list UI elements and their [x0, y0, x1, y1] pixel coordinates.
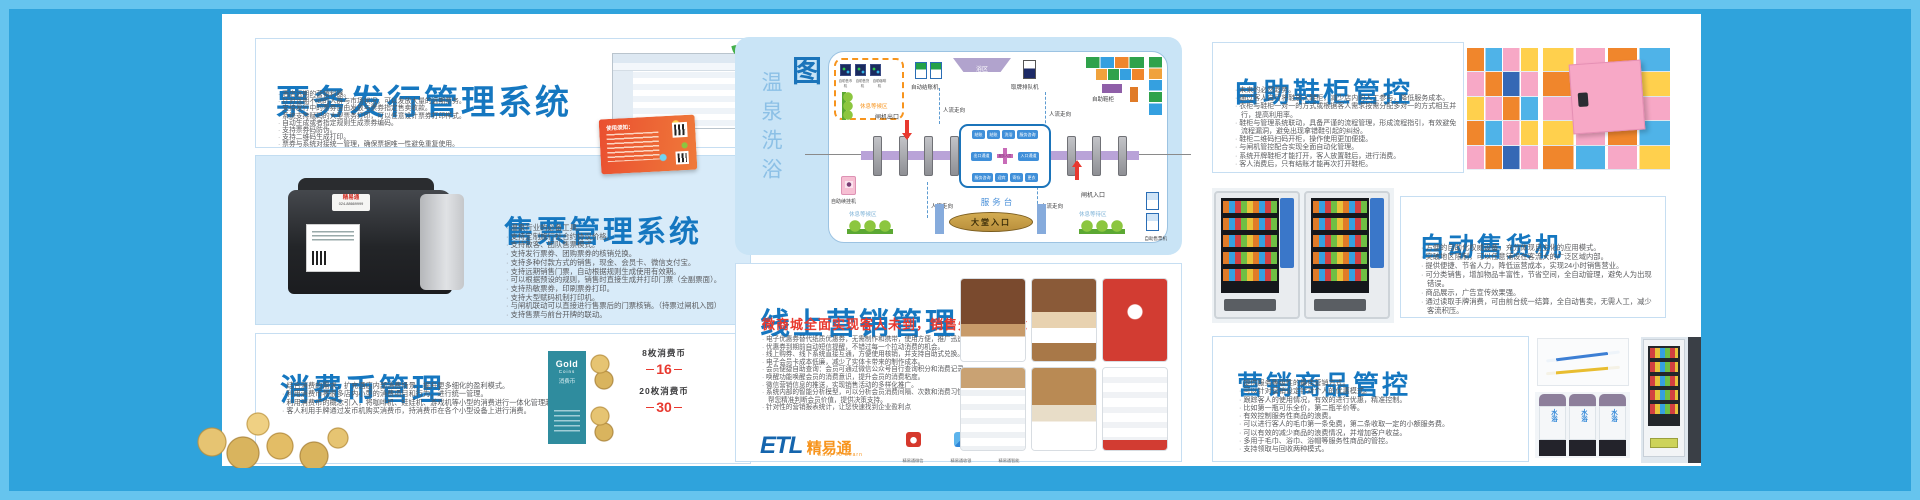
- swabs-photo: [1537, 338, 1629, 386]
- product-shelf: [1650, 390, 1678, 400]
- panel-ticket-sales: 精易通 024-88669999 售票管理系统 温泉行业的必备工具。支持定制旅行…: [255, 155, 751, 325]
- entry-gates: [1041, 136, 1127, 176]
- mini-machine-label: 自助售币机: [838, 78, 853, 88]
- bullet-item: 支持售票与前台开牌的联动。: [506, 311, 748, 320]
- bullet-item: 可以进行客人的毛巾第一条免费，第二条收取一定的小额服务费。: [1239, 420, 1519, 428]
- product-shelf: [1313, 218, 1367, 230]
- gate-pillar: [1092, 136, 1101, 176]
- bottle-label: 水浴: [1578, 409, 1588, 422]
- locker-closeup-photo: [1543, 48, 1670, 170]
- bullet-item: 提供便捷、节省人力，降低运营成本，实现24小时销售营业。: [1421, 261, 1657, 270]
- shoe-locker-graphic: 自助鞋柜: [1086, 57, 1162, 117]
- orange-block: [1130, 87, 1138, 102]
- bullet-item: 电子优惠券替代纸质优惠券，无需制作和携带，使用方便，推广迅速: [762, 336, 974, 344]
- bullet-item: 支持发行中的票券自由发放与票券指定售卖收款。: [278, 105, 613, 112]
- coin-qty-label: 8枚消费币: [620, 347, 708, 359]
- bottle-foot: [1569, 440, 1596, 456]
- vending-interior: [1648, 346, 1680, 426]
- bullet-item: 自动生成或者指定规则生成票券编码。: [278, 120, 613, 127]
- service-chip: 寄存: [1010, 173, 1023, 182]
- coins-photo: [188, 398, 368, 468]
- ticket-kiosk-icon: [1146, 213, 1159, 231]
- service-chip: 服务咨询: [1017, 130, 1038, 139]
- mini-machine-icons: [840, 64, 881, 76]
- bullet-item: 可分类销售，增加物品丰富性，节省空间，全自动管理，避免人为出现错误。: [1421, 270, 1657, 288]
- bullet-item: 可以针对营销设定针对个人的优惠模式。: [1239, 387, 1519, 395]
- bottle-label: 水浴: [1608, 409, 1618, 422]
- bullet-item: 可以有效的减少商品的浪费情况，并增加客户收益。: [1239, 429, 1519, 437]
- product-shelf: [1313, 201, 1367, 213]
- mini-machine-icon: [870, 64, 881, 76]
- coin-price: 8枚消费币 16: [620, 347, 708, 379]
- bottle: 水浴: [1569, 394, 1596, 456]
- app-screenshot: [960, 367, 1026, 451]
- service-desk-label: 服务台: [829, 196, 1167, 208]
- ticket-kiosk-icon: [1146, 192, 1159, 210]
- renew-machine-icon: [841, 176, 856, 195]
- bottle-cap: [1569, 394, 1596, 406]
- ticket-card: 使用须知：: [599, 115, 698, 175]
- panel-flow-diagram: 温泉洗浴 自助化流程图 自助售币机自助售货机自助咖啡机 休息等候区 自动结账机 …: [735, 37, 1182, 255]
- purple-block: [1102, 84, 1122, 93]
- vending-interior: [1311, 198, 1369, 293]
- app-screenshot: [1031, 278, 1097, 362]
- qr-code-icon: [675, 151, 689, 165]
- product-shelf: [1313, 269, 1367, 281]
- exit-gates: [873, 136, 959, 176]
- bullet-list: 温泉行业的必备工具。支持定制旅行社合约协议价格。支持散客、团队售票模式。支持发行…: [506, 224, 748, 320]
- bullet-item: 唤醒功能唤醒会员的消费意识，提升会员的消费粘度。: [762, 374, 974, 382]
- bullet-item: 票券与系统对接统一管理，确保票据唯一性避免重复使用。: [278, 141, 613, 148]
- product-shelf: [1223, 269, 1277, 281]
- screenshot-content: [961, 368, 1025, 450]
- locker-tiles-row: [1086, 57, 1144, 68]
- poster-canvas: 票务发行管理系统 酒店远期的营销利器。针对远期不同的人群与市场状况，可以发放大量…: [0, 0, 1920, 500]
- swab-blue: [1546, 351, 1620, 363]
- bench-icon: [1079, 220, 1125, 234]
- locker-tiles-row: [1096, 69, 1144, 80]
- screenshot-content: [1032, 279, 1096, 361]
- bullet-item: 客人消费后，只有结账才能再次打开鞋柜。: [1235, 161, 1457, 169]
- towel-vending-photo: [1641, 337, 1701, 463]
- qr-code-icon: [672, 122, 688, 138]
- printer-brand-plate: 精易通 024-88669999: [332, 194, 370, 211]
- product-shelf: [1650, 348, 1678, 358]
- app-label: 精易通微信: [903, 458, 924, 463]
- mini-machine-icon: [855, 64, 866, 76]
- panel-goods-control: 营销商品管控 提供服务等级性的最佳营销方式。可以针对营销设定针对个人的优惠模式。…: [1212, 336, 1529, 462]
- product-shelf: [1650, 362, 1678, 372]
- checkout-kiosks: [915, 62, 942, 79]
- app-label: 精易通收银: [951, 458, 972, 463]
- coin-price-value: 30: [646, 399, 682, 415]
- printed-label: [306, 224, 360, 272]
- dispense-slot: [1314, 299, 1366, 311]
- product-shelf: [1223, 235, 1277, 247]
- screenshot-content: [961, 279, 1025, 361]
- card-title: Gold: [548, 359, 586, 369]
- product-shelf: [1650, 376, 1678, 386]
- screenshot-content: [1103, 279, 1167, 361]
- app-screenshot: [1102, 367, 1168, 451]
- locker-photo: [1467, 48, 1538, 170]
- app-unit: 精易通微信: [896, 432, 930, 467]
- exit-arrow-icon: [905, 120, 909, 138]
- rest-area-label: 休息等候区: [860, 102, 888, 110]
- flow-path: [939, 88, 940, 124]
- service-chip: 更衣: [1025, 173, 1038, 182]
- product-shelf: [1223, 201, 1277, 213]
- adjacent-machine: [1688, 337, 1701, 463]
- panel-ticket-issuance: 票务发行管理系统 酒店远期的营销利器。针对远期不同的人群与市场状况，可以发放大量…: [255, 38, 751, 148]
- ticket-kiosks: [1146, 192, 1159, 231]
- product-shelf: [1223, 252, 1277, 264]
- vending-machine: [1304, 191, 1390, 319]
- bottles-photo: 水浴 水浴 水浴: [1535, 392, 1630, 458]
- compass-icon: 服务人员: [997, 148, 1013, 164]
- locker-row: [1467, 48, 1538, 71]
- keypad-panel: [1280, 198, 1294, 268]
- bullet-item: 系统支持赋码的大型票务打印，可以任意设计票券打印样式。: [278, 113, 613, 120]
- mini-machine-label: 自助咖啡机: [872, 78, 887, 88]
- mini-machine-labels: 自助售币机自助售货机自助咖啡机: [838, 78, 887, 88]
- people-flow-label: 人流走向: [1049, 110, 1071, 118]
- flow-path: [1045, 92, 1046, 128]
- service-chip: 入口通道: [1018, 152, 1039, 161]
- service-chip-row: 出口通道 服务人员 入口通道: [964, 148, 1046, 164]
- panel-online-marketing: 线上营销管理 微商城全面实现客人未到，销售先行的理念 电子优惠券替代纸质优惠券，…: [735, 263, 1182, 462]
- lock-icon: [1578, 92, 1589, 107]
- coin-price: 20枚消费币 30: [620, 385, 708, 417]
- locker-row: [1467, 72, 1538, 95]
- queue-machine-icon: [1023, 60, 1036, 79]
- app-screenshot-grid: [960, 278, 1172, 451]
- bullet-item: 针对性的营销报表统计，让您快速找到企业盈利点: [762, 404, 974, 412]
- locker-row: [1543, 146, 1670, 169]
- service-chip: 洗浴: [1002, 130, 1015, 139]
- logo-en: ETL: [760, 432, 802, 459]
- service-chip: 结账: [972, 130, 985, 139]
- printer-phone: 024-88669999: [332, 202, 370, 206]
- bullet-item: 鞋柜与管理系统联动，具备严谨的流程管理，形成流程指引，有效避免流程漏洞，避免出现…: [1235, 120, 1457, 136]
- wechat-app-icon: [906, 432, 921, 447]
- swab-yellow: [1546, 366, 1620, 375]
- service-chip-row: 服务咨询迎宾寄存更衣: [964, 173, 1046, 182]
- entry-arrow-icon: [1075, 162, 1079, 180]
- bottle-cap: [1599, 394, 1626, 406]
- vending-frame: [1643, 339, 1685, 457]
- printer-brand: 精易通: [332, 194, 370, 202]
- mini-machine-label: 自助售货机: [855, 78, 870, 88]
- dispense-slot: [1650, 438, 1678, 448]
- panel-shoe-locker: 自助鞋柜管控 未来的必然趋势。通过客人自行将鞋放入鞋柜，减少店内的人工参与，降低…: [1212, 42, 1464, 173]
- bullet-item: 跟踪客人的使用情况，有效的进行优惠，精准控制。: [1239, 396, 1519, 404]
- coin-qty-label: 20枚消费币: [620, 385, 708, 397]
- bench-icon: [842, 92, 855, 120]
- label-printer-photo: 精易通 024-88669999: [270, 162, 485, 314]
- printer-side: [420, 194, 464, 290]
- rest-area-dashed-box: 自助售币机自助售货机自助咖啡机 休息等候区: [834, 58, 904, 120]
- service-chip: 结账: [987, 130, 1000, 139]
- rest-area-label: 休息等候区: [849, 210, 877, 218]
- locker-row: [1467, 121, 1538, 144]
- bullet-item: 商品展示，广告宣传效果强。: [1421, 288, 1657, 297]
- locker-door: [1569, 60, 1646, 135]
- panel-vending-machine: 自动售货机 方便的自助化权威设备，充分体现自主化的应用模式。突破地区限制，可以任…: [1400, 196, 1666, 318]
- queue-machine-label: 取牌排队机: [1011, 83, 1039, 91]
- card-label: 消费币: [548, 377, 586, 385]
- coin-cluster-photo: [590, 354, 614, 390]
- bullet-list: 提供服务等级性的最佳营销方式。可以针对营销设定针对个人的优惠模式。跟踪客人的使用…: [1239, 379, 1519, 454]
- checkout-label: 自动结账机: [911, 83, 939, 91]
- bullet-list: 酒店远期的营销利器。针对远期不同的人群与市场状况，可以发放大量的远期票务。支持发…: [278, 91, 613, 149]
- coin-price-value: 16: [646, 361, 682, 377]
- bullet-item: 会员便捷自助查询：会员可通过微信公众号自行查询积分和消费记录。: [762, 366, 974, 374]
- locker-tiles-column: [1149, 57, 1162, 115]
- bullet-item: 系统开牌鞋柜才能打开，客人放置鞋后，进行消费。: [1235, 153, 1457, 161]
- hall-entrance: 大堂入口: [949, 212, 1033, 232]
- bullet-item: 衣柜与鞋柜一对一的方式或根据客人需求按需分配多对一的方式相互并行，提高利用率。: [1235, 103, 1457, 119]
- people-flow-label: 人流走向: [943, 106, 965, 114]
- coin-cluster-photo: [590, 406, 614, 442]
- bullet-item: 未来的必然趋势。: [1235, 87, 1457, 95]
- vending-machine: [1214, 191, 1300, 319]
- gate-exit-label: 闸机出口: [875, 112, 899, 121]
- bullet-list: 电子优惠券替代纸质优惠券，无需制作和携带，使用方便，推广迅速优惠券到期前自动短信…: [762, 336, 974, 412]
- locker-row: [1467, 97, 1538, 120]
- app-screenshot: [960, 278, 1026, 362]
- screenshot-content: [1103, 368, 1167, 450]
- app-screenshot: [1031, 367, 1097, 451]
- service-chip: 服务咨询: [972, 173, 993, 182]
- shoe-locker-label: 自助鞋柜: [1092, 95, 1114, 103]
- ticket-note-label: 使用须知：: [606, 123, 634, 132]
- bottle-label: 水浴: [1548, 409, 1558, 422]
- bullet-item: 线上购券、线下系统直接互通，方便使用核销，并支持自助式兑换。: [762, 351, 974, 359]
- checkout-kiosk-icon: [930, 62, 942, 79]
- service-chip: 出口通道: [971, 152, 992, 161]
- product-shelf: [1223, 218, 1277, 230]
- bullet-item: 比如第一瓶可乐全价，第二瓶半价等。: [1239, 404, 1519, 412]
- bullet-item: 系统内部的智能分析模型，可以分析会员消费间隔、次数和消费习惯，帮您精准判断会员价…: [762, 389, 974, 404]
- bottle-foot: [1599, 440, 1626, 456]
- gate-pillar: [1118, 136, 1127, 176]
- bench-icon: [847, 220, 893, 234]
- bottle: 水浴: [1599, 394, 1626, 456]
- qr-code-icon: [312, 251, 326, 265]
- bottle: 水浴: [1539, 394, 1566, 456]
- checkout-kiosk-icon: [915, 62, 927, 79]
- bottle-body: 水浴: [1599, 406, 1626, 440]
- gate-pillar: [873, 136, 882, 176]
- product-shelf: [1650, 404, 1678, 414]
- service-core-label: 服务人员: [995, 153, 1015, 158]
- bath-area-shape: 浴区: [953, 58, 1011, 72]
- bullet-item: 支持领取与回收两种模式。: [1239, 445, 1519, 453]
- product-shelf: [1313, 252, 1367, 264]
- renew-machine-label: 自助续挂机: [831, 198, 856, 205]
- logo-tagline: Easy To Learn: [818, 452, 863, 458]
- bullet-item: 通过读取手牌消费，可由前台统一结算，全自动售卖，无需人工，减少客流积压。: [1421, 297, 1657, 315]
- mini-machine-icon: [840, 64, 851, 76]
- vending-interior: [1221, 198, 1279, 293]
- service-chip-row: 结账结账洗浴服务咨询: [964, 130, 1046, 139]
- gold-coins-card: Gold Coins 消费币: [548, 351, 586, 444]
- bottle-body: 水浴: [1569, 406, 1596, 440]
- bath-area-label: 浴区: [976, 67, 988, 73]
- gate-pillar: [950, 136, 959, 176]
- floor-plan: 自助售币机自助售货机自助咖啡机 休息等候区 自动结账机 浴区 取牌排队机 自助鞋…: [828, 51, 1168, 243]
- dispense-slot: [1224, 299, 1276, 311]
- bullet-item: 突破地区限制，可以任意铺设在客流大的广泛区域内部。: [1421, 252, 1657, 261]
- gate-pillar: [924, 136, 933, 176]
- app-label: 精易通智能: [999, 458, 1020, 463]
- hall-pillar: [1037, 204, 1046, 234]
- bottle-cap: [1539, 394, 1566, 406]
- rest-area-label: 休息等待区: [1079, 210, 1107, 218]
- keypad-panel: [1370, 198, 1384, 268]
- ticket-kiosk-label: 自助售票机: [1145, 236, 1168, 242]
- bottle-foot: [1539, 440, 1566, 456]
- card-subtitle: Coins: [548, 369, 586, 374]
- bullet-item: 与闸机管控配合实现全面自动化管理。: [1235, 144, 1457, 152]
- vending-machines-photo: [1212, 188, 1394, 323]
- service-chip: 迎宾: [995, 173, 1008, 182]
- hall-pillar: [935, 204, 944, 234]
- app-screenshot: [1102, 278, 1168, 362]
- etl-logo: ETL 精易通 Easy To Learn: [760, 432, 890, 458]
- bullet-item: 方便的自助化权威设备，充分体现自主化的应用模式。: [1421, 243, 1657, 252]
- product-shelf: [1313, 235, 1367, 247]
- bullet-list: 方便的自助化权威设备，充分体现自主化的应用模式。突破地区限制，可以任意铺设在客流…: [1421, 243, 1657, 315]
- bottle-body: 水浴: [1539, 406, 1566, 440]
- ticket-text-lines: [606, 131, 659, 162]
- bullet-list: 未来的必然趋势。通过客人自行将鞋放入鞋柜，减少店内的人工参与，降低服务成本。衣柜…: [1235, 87, 1457, 169]
- screenshot-content: [1032, 368, 1096, 450]
- service-hub-box: 结账结账洗浴服务咨询 出口通道 服务人员 入口通道 服务咨询迎宾寄存更衣: [959, 124, 1051, 188]
- locker-row: [1467, 146, 1538, 169]
